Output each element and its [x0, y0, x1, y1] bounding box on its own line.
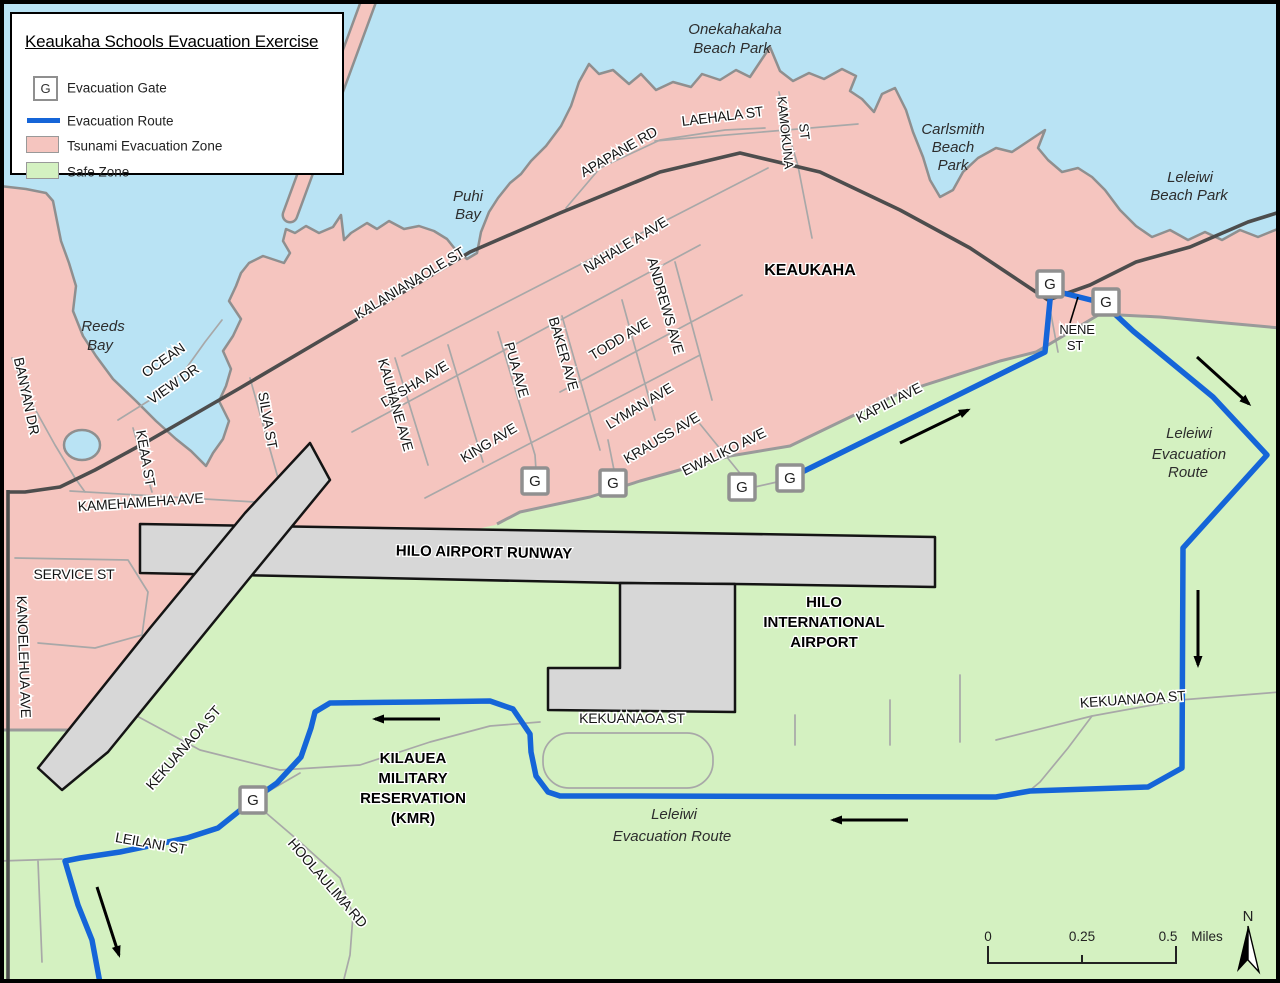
map-label: SERVICE ST: [34, 566, 116, 582]
route-line-icon: [27, 118, 60, 123]
svg-text:G: G: [1100, 294, 1112, 311]
map-label: Beach: [932, 139, 975, 156]
map-label: Bay: [455, 206, 482, 223]
legend-item-label: Evacuation Route: [67, 114, 174, 129]
map-label: Onekahakaha: [688, 21, 781, 38]
map-label: Evacuation: [1152, 446, 1226, 463]
evacuation-gate-marker: G: [522, 468, 548, 494]
svg-text:G: G: [736, 479, 748, 496]
pond: [64, 430, 100, 460]
map-label: Beach Park: [693, 40, 772, 57]
map-label: Bay: [87, 337, 114, 354]
evacuation-gate-marker: G: [1093, 289, 1119, 315]
safe-zone-swatch: [26, 162, 59, 179]
map-label: KEKUANAOA ST: [579, 710, 685, 726]
map-label: ST: [1067, 338, 1083, 353]
map-label: Leleiwi: [1167, 169, 1214, 186]
legend-title: Keaukaha Schools Evacuation Exercise: [25, 32, 318, 52]
map-label: NENE: [1059, 322, 1095, 337]
north-label: N: [1243, 908, 1254, 925]
svg-text:G: G: [529, 473, 541, 490]
map-label: ST: [796, 123, 813, 141]
map-label: INTERNATIONAL: [763, 614, 884, 631]
map-label: HILO: [806, 594, 842, 611]
tsunami-zone-swatch: [26, 136, 59, 153]
map-label: Leleiwi: [651, 806, 698, 823]
map-label: Route: [1168, 464, 1208, 481]
scale-unit: Miles: [1191, 929, 1223, 944]
map-label: AIRPORT: [790, 634, 858, 651]
map-label: Leleiwi: [1166, 425, 1213, 442]
legend-item-label: Evacuation Gate: [67, 81, 167, 96]
scale-tick-half: 0.5: [1159, 929, 1178, 944]
svg-text:G: G: [784, 470, 796, 487]
evacuation-gate-marker: G: [600, 470, 626, 496]
map-stage: KALANIANAOLE STNAHALE A AVEAPAPANE RDLAE…: [0, 0, 1280, 983]
evacuation-gate-marker: G: [1037, 271, 1063, 297]
svg-text:G: G: [607, 475, 619, 492]
svg-text:G: G: [247, 792, 259, 809]
map-label: Park: [938, 157, 970, 174]
scale-tick-quarter: 0.25: [1069, 929, 1095, 944]
map-label: Evacuation Route: [613, 828, 731, 845]
map-label: RESERVATION: [360, 790, 466, 807]
map-label: Beach Park: [1150, 187, 1229, 204]
map-label: KEAUKAHA: [764, 262, 856, 279]
map-label: HILO AIRPORT RUNWAY: [396, 542, 573, 562]
evacuation-gate-marker: G: [729, 474, 755, 500]
map-label: MILITARY: [378, 770, 447, 787]
gate-icon: G: [33, 76, 58, 101]
map-label: (KMR): [391, 810, 435, 827]
svg-text:G: G: [1044, 276, 1056, 293]
legend-item-label: Safe Zone: [67, 165, 129, 180]
scale-tick-0: 0: [984, 929, 992, 944]
map-label: Carlsmith: [921, 121, 984, 138]
map-label: Reeds: [81, 318, 125, 335]
legend-item-label: Tsunami Evacuation Zone: [67, 139, 222, 154]
legend: Keaukaha Schools Evacuation Exercise G E…: [10, 12, 344, 175]
map-label: Puhi: [453, 188, 484, 205]
evacuation-gate-marker: G: [240, 787, 266, 813]
map-label: KILAUEA: [380, 750, 447, 767]
evacuation-gate-marker: G: [777, 465, 803, 491]
